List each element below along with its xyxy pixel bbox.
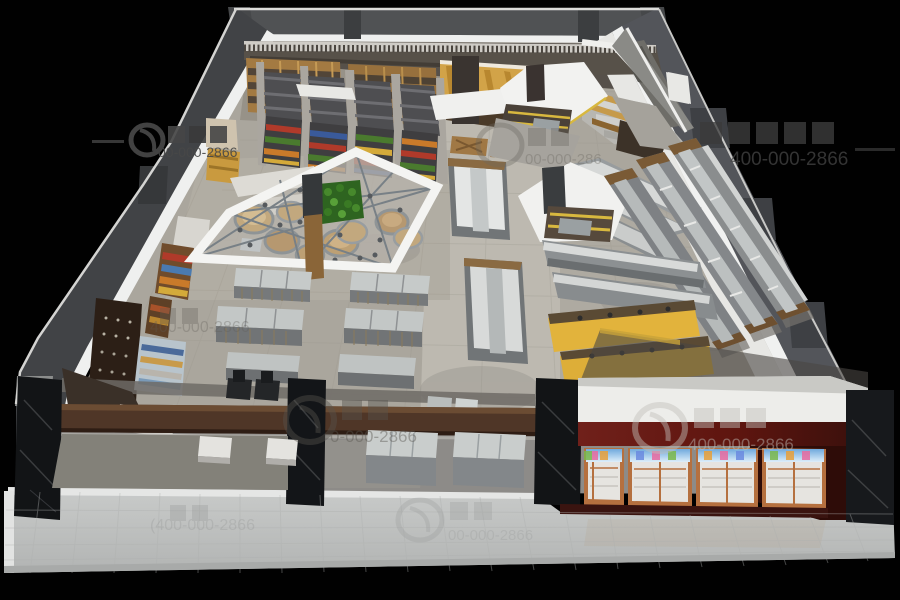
svg-text:00-000-2866: 00-000-2866: [448, 527, 533, 544]
svg-text:400-000-2866: 400-000-2866: [730, 149, 848, 170]
svg-text:0-000-2866: 0-000-2866: [330, 427, 417, 446]
svg-text:00-000-2866: 00-000-2866: [158, 144, 238, 160]
svg-text:400-000-2866: 400-000-2866: [688, 435, 794, 454]
svg-text:00-000-286: 00-000-286: [525, 151, 602, 168]
